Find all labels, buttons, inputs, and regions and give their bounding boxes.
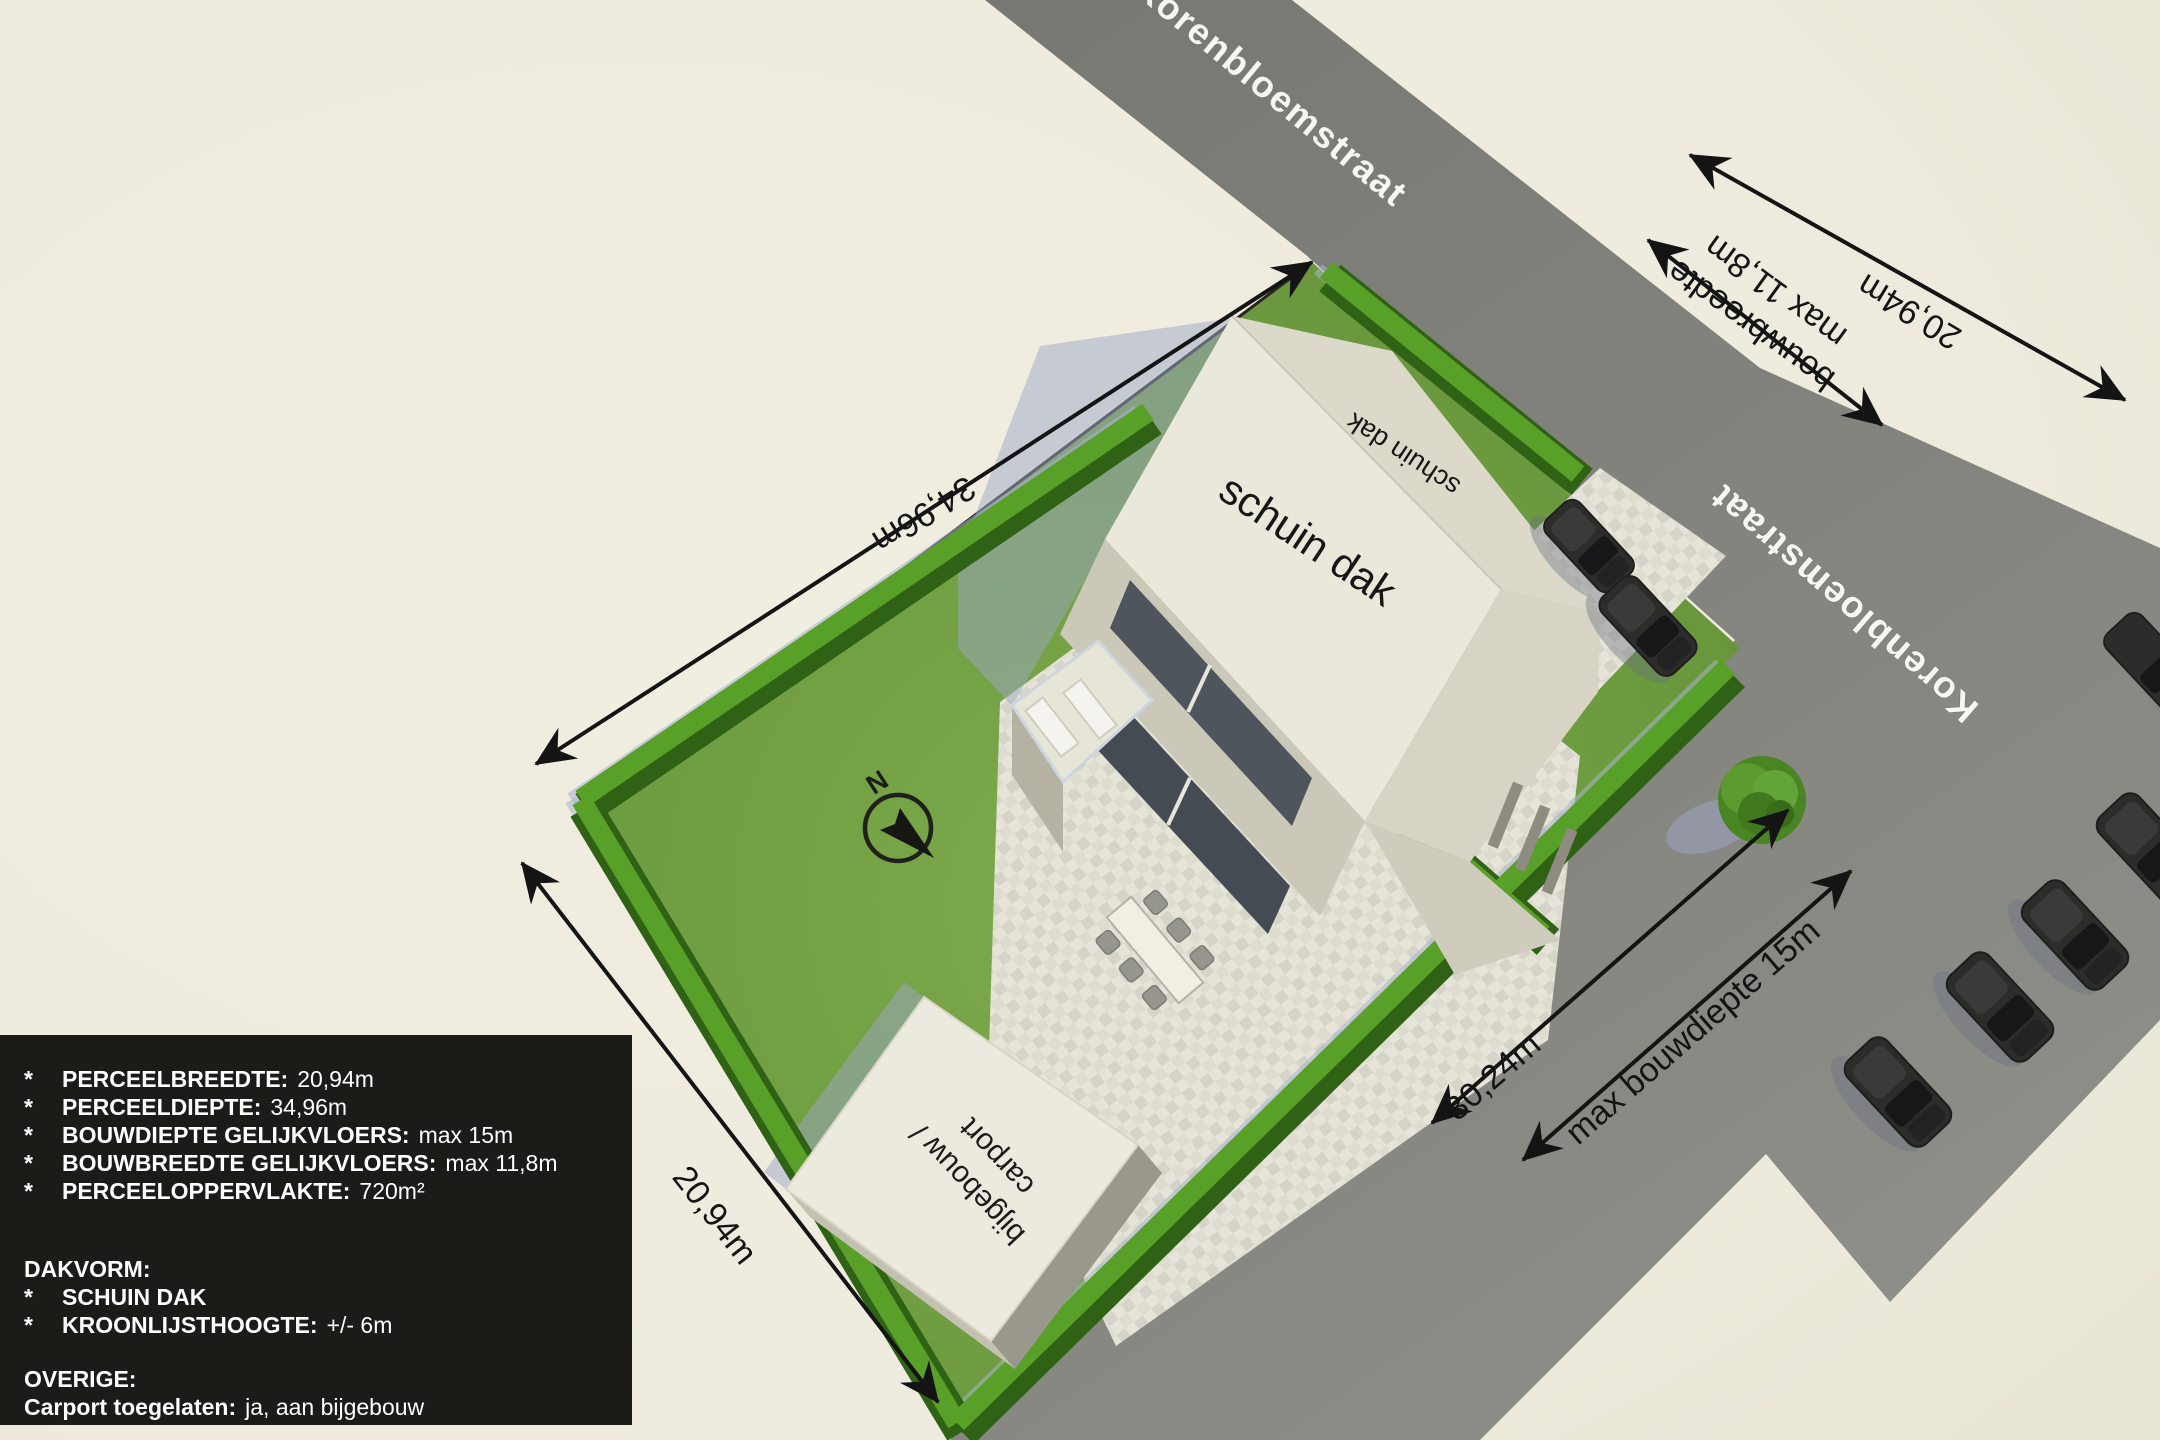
spacer xyxy=(24,1205,612,1255)
info-value: max 11,8m xyxy=(445,1150,557,1176)
info-label: SCHUIN DAK xyxy=(62,1284,206,1310)
info-row: * BOUWBREEDTE GELIJKVLOERS:max 11,8m xyxy=(24,1149,612,1177)
info-row: Carport toegelaten:ja, aan bijgebouw xyxy=(24,1393,612,1421)
spacer xyxy=(24,1339,612,1365)
info-box: * PERCEELBREEDTE:20,94m * PERCEELDIEPTE:… xyxy=(0,1035,632,1425)
info-heading: OVERIGE: xyxy=(24,1366,136,1392)
bullet: * xyxy=(24,1093,62,1121)
info-section-heading: DAKVORM: xyxy=(24,1255,612,1283)
info-row: * SCHUIN DAK xyxy=(24,1283,612,1311)
info-row: * PERCEELBREEDTE:20,94m xyxy=(24,1065,612,1093)
info-value: 34,96m xyxy=(270,1094,347,1120)
info-label: BOUWDIEPTE GELIJKVLOERS: xyxy=(62,1122,410,1148)
bullet: * xyxy=(24,1065,62,1093)
info-value: 20,94m xyxy=(297,1066,374,1092)
info-label: Carport toegelaten: xyxy=(24,1394,236,1420)
info-row: * PERCEELOPPERVLAKTE:720m² xyxy=(24,1177,612,1205)
info-label: PERCEELOPPERVLAKTE: xyxy=(62,1178,350,1204)
info-value: +/- 6m xyxy=(327,1312,393,1338)
info-row: * PERCEELDIEPTE:34,96m xyxy=(24,1093,612,1121)
info-row: * BOUWDIEPTE GELIJKVLOERS:max 15m xyxy=(24,1121,612,1149)
bullet: * xyxy=(24,1177,62,1205)
info-value: max 15m xyxy=(419,1122,514,1148)
info-label: PERCEELBREEDTE: xyxy=(62,1066,288,1092)
info-value: 720m² xyxy=(359,1178,424,1204)
bullet: * xyxy=(24,1311,62,1339)
info-value: ja, aan bijgebouw xyxy=(245,1394,424,1420)
bullet: * xyxy=(24,1149,62,1177)
info-label: BOUWBREEDTE GELIJKVLOERS: xyxy=(62,1150,436,1176)
site-plan-stage: N xyxy=(0,0,2160,1440)
info-section-heading: OVERIGE: xyxy=(24,1365,612,1393)
info-label: KROONLIJSTHOOGTE: xyxy=(62,1312,318,1338)
bullet: * xyxy=(24,1121,62,1149)
bullet: * xyxy=(24,1283,62,1311)
info-label: PERCEELDIEPTE: xyxy=(62,1094,261,1120)
info-row: * KROONLIJSTHOOGTE:+/- 6m xyxy=(24,1311,612,1339)
info-heading: DAKVORM: xyxy=(24,1256,151,1282)
